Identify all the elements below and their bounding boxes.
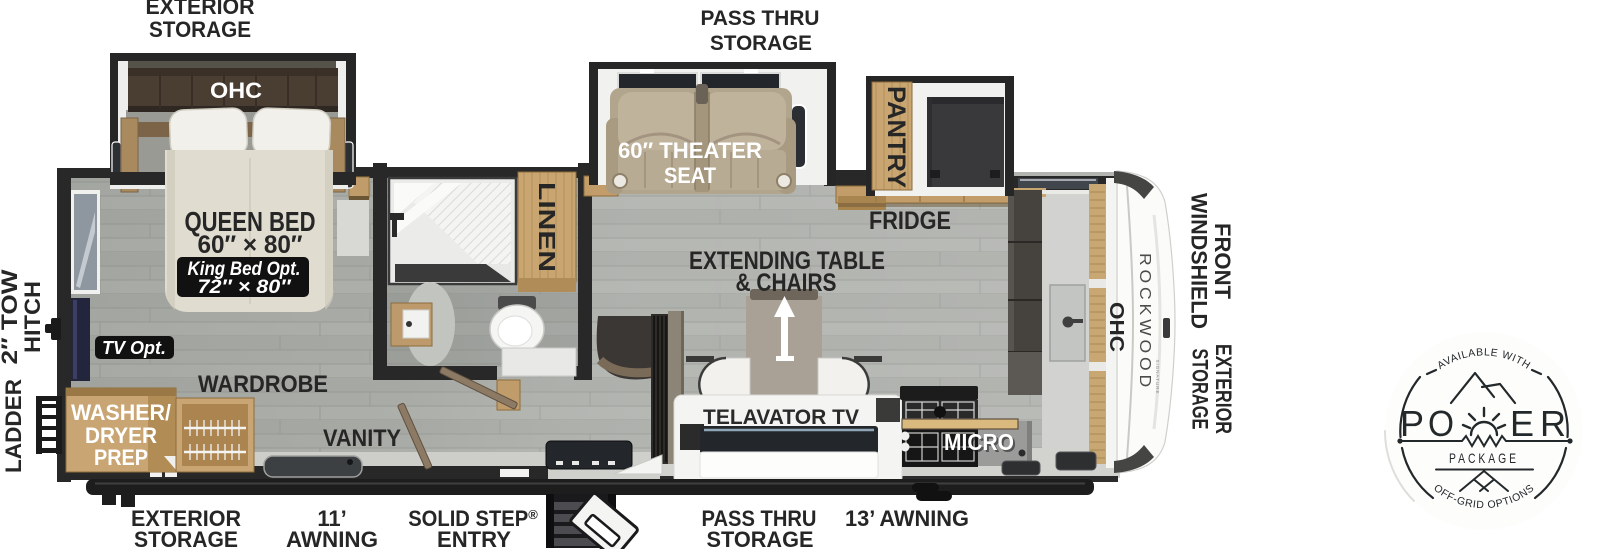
- svg-text:60″ × 80″: 60″ × 80″: [198, 231, 303, 259]
- svg-text:MICRO: MICRO: [944, 429, 1014, 455]
- svg-text:P: P: [1400, 403, 1424, 444]
- svg-text:E: E: [1510, 403, 1534, 444]
- svg-text:TELAVATOR TV: TELAVATOR TV: [703, 406, 859, 429]
- svg-text:STORAGE: STORAGE: [707, 527, 814, 549]
- svg-text:AWNING: AWNING: [286, 527, 378, 549]
- svg-text:EXTERIORSTORAGE: EXTERIORSTORAGE: [1188, 344, 1237, 434]
- svg-text:WASHER/: WASHER/: [71, 400, 171, 425]
- svg-text:PREP: PREP: [94, 445, 148, 470]
- svg-text:TV Opt.: TV Opt.: [102, 338, 166, 358]
- svg-text:72″ × 80″: 72″ × 80″: [198, 277, 292, 298]
- svg-text:O: O: [1428, 403, 1454, 444]
- svg-text:WARDROBE: WARDROBE: [198, 371, 328, 398]
- svg-text:2″ TOWHITCH: 2″ TOWHITCH: [0, 269, 45, 364]
- svg-text:PASS THRU: PASS THRU: [701, 7, 820, 30]
- svg-text:SEAT: SEAT: [664, 163, 717, 188]
- svg-text:STORAGE: STORAGE: [710, 32, 812, 55]
- svg-text:STORAGE: STORAGE: [149, 17, 251, 42]
- svg-text:13’ AWNING: 13’ AWNING: [845, 506, 969, 531]
- svg-text:PANTRY: PANTRY: [882, 86, 910, 188]
- svg-text:VANITY: VANITY: [323, 425, 401, 452]
- svg-text:OHC: OHC: [1105, 302, 1127, 352]
- svg-text:SIGNATURE: SIGNATURE: [1155, 360, 1160, 395]
- svg-text:R: R: [1540, 403, 1566, 444]
- svg-text:ENTRY: ENTRY: [437, 527, 511, 549]
- svg-text:60″ THEATER: 60″ THEATER: [618, 138, 762, 163]
- svg-text:STORAGE: STORAGE: [134, 527, 238, 549]
- svg-text:LADDER: LADDER: [1, 379, 26, 473]
- svg-text:OHC: OHC: [210, 78, 262, 103]
- svg-text:LINEN: LINEN: [534, 182, 560, 272]
- svg-text:ROCKWOOD: ROCKWOOD: [1136, 253, 1153, 391]
- svg-text:PACKAGE: PACKAGE: [1449, 450, 1519, 466]
- svg-text:FRIDGE: FRIDGE: [869, 207, 951, 235]
- svg-text:& CHAIRS: & CHAIRS: [736, 269, 837, 297]
